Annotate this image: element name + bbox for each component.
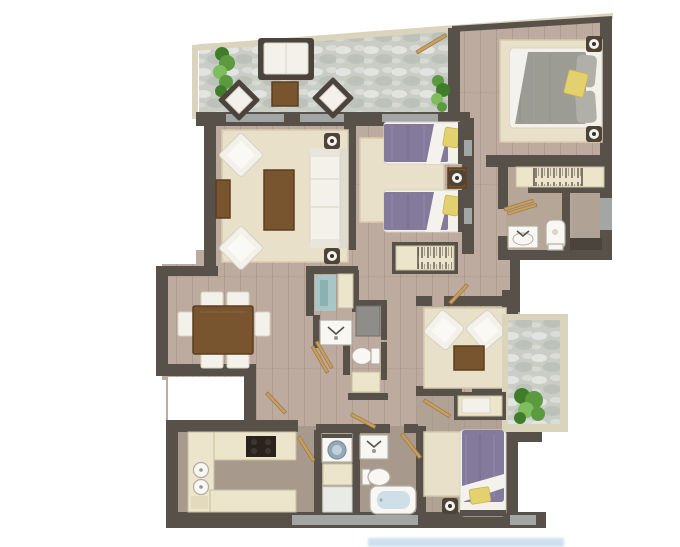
wc-wall (348, 393, 388, 400)
cooktop (246, 436, 276, 457)
tile-floor (323, 487, 352, 512)
bottom-window (292, 515, 418, 525)
cabinet (352, 372, 380, 392)
floor-plan-image (0, 0, 680, 547)
counter-bottom (210, 490, 296, 512)
nightstand-lamp (586, 126, 602, 142)
sitting-area (423, 308, 507, 388)
wc-wall (306, 266, 314, 316)
floor-lamp (324, 133, 340, 149)
nightstand-lamp (586, 36, 602, 52)
step-wall (244, 364, 256, 428)
chair (227, 292, 249, 307)
toilet (362, 469, 390, 486)
cropped-watermark (368, 538, 564, 547)
wc-wall (381, 342, 387, 380)
chair (201, 353, 223, 368)
shower-bench (570, 238, 602, 250)
kitchen-hall-wall (314, 430, 322, 516)
toilet (352, 348, 380, 365)
facade-window (382, 114, 438, 122)
coffee-table (264, 170, 294, 230)
chair (201, 292, 223, 307)
double-bed (510, 48, 602, 128)
ensuite-left-wall (498, 167, 508, 209)
chair (227, 353, 249, 368)
washbasin (320, 320, 352, 345)
cabinet (338, 274, 353, 308)
side-table (216, 180, 230, 218)
twin-wall-window (464, 208, 472, 224)
master-bottom-wall (486, 155, 612, 167)
terrace-master-divider-wall (448, 28, 460, 118)
floor-plan-canvas (0, 0, 680, 547)
single-bed (460, 430, 506, 516)
dining-table (193, 306, 253, 354)
nightstand-lamp (449, 170, 465, 186)
bathtub (370, 486, 416, 514)
washbasin (360, 435, 388, 459)
wc-wall (381, 304, 387, 340)
shower-drain (320, 280, 328, 306)
facade-window (300, 114, 344, 122)
bottom-window (510, 515, 536, 525)
cabinet (323, 464, 352, 485)
twin-wall-window (464, 140, 472, 156)
shower-tray (356, 306, 380, 336)
sitting-top-wall (416, 296, 432, 306)
ensuite-bottom-wall (498, 250, 612, 260)
mat (191, 496, 208, 509)
washing-machine (322, 434, 352, 462)
wardrobe (516, 167, 604, 187)
living-room (216, 130, 348, 271)
outdoor-sofa (258, 38, 314, 80)
terrace-left-trim (192, 45, 198, 119)
outdoor-coffee-table (272, 82, 298, 106)
bath-top-wall (316, 424, 390, 433)
bath-top-wall (404, 424, 418, 433)
floor-lamp (324, 248, 340, 264)
master-bedroom (500, 36, 602, 142)
washbasin (508, 226, 538, 248)
living-left-wall (204, 118, 216, 274)
dining-left-wall (156, 266, 168, 374)
toilet (546, 220, 565, 250)
kitchen-left-wall (166, 420, 178, 522)
chair (178, 312, 193, 336)
shower-floor (572, 194, 600, 238)
wc-wall (343, 343, 350, 375)
laundry-bath-divider (352, 433, 360, 516)
chair (255, 312, 270, 336)
nightstand-lamp (442, 498, 458, 514)
sofa (310, 148, 348, 248)
single-bed (384, 190, 463, 232)
single-bed (384, 122, 463, 164)
wardrobe (392, 242, 458, 274)
ensuite-glass-door (600, 198, 612, 230)
coffee-table (454, 346, 484, 370)
balcony (502, 314, 568, 432)
closet-bench (454, 392, 506, 420)
kitchen-top-wall (166, 420, 298, 432)
laundry (322, 434, 352, 512)
